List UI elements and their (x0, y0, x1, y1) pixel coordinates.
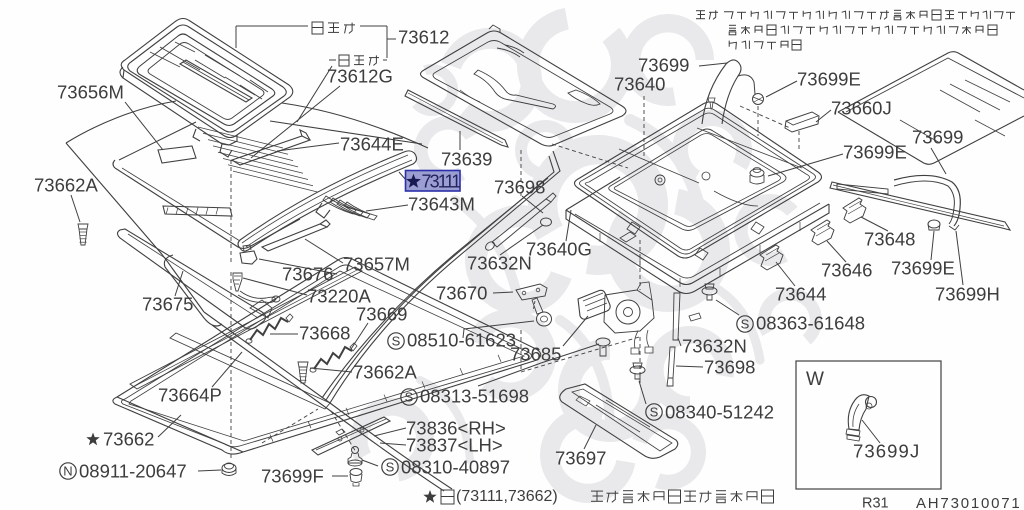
svg-text:73632N: 73632N (467, 253, 532, 274)
svg-text:S: S (405, 390, 414, 405)
svg-text:73675: 73675 (142, 294, 193, 315)
svg-text:08911-20647: 08911-20647 (79, 461, 187, 482)
svg-text:73612G: 73612G (327, 66, 393, 87)
svg-text:S: S (650, 405, 659, 420)
svg-text:AH73010071: AH73010071 (916, 495, 1022, 510)
svg-text:73699J: 73699J (853, 441, 920, 462)
svg-text:73699E: 73699E (797, 69, 861, 90)
svg-text:73640: 73640 (614, 74, 665, 95)
svg-text:73664P: 73664P (158, 385, 222, 406)
svg-text:73662A: 73662A (353, 362, 417, 383)
svg-text:S: S (386, 460, 395, 475)
svg-text:73668: 73668 (299, 323, 350, 344)
svg-text:73640G: 73640G (526, 239, 592, 260)
svg-text:73644: 73644 (775, 284, 826, 305)
svg-text:73699E: 73699E (891, 258, 955, 279)
svg-text:(73111,73662): (73111,73662) (456, 488, 558, 505)
svg-text:73632N: 73632N (682, 336, 747, 357)
svg-text:73699: 73699 (638, 55, 689, 76)
svg-text:08340-51242: 08340-51242 (665, 402, 774, 423)
svg-text:73685: 73685 (510, 344, 561, 365)
svg-text:73648: 73648 (864, 229, 915, 250)
svg-text:73111: 73111 (422, 172, 462, 192)
svg-text:73646: 73646 (821, 260, 872, 281)
svg-text:73612: 73612 (398, 27, 449, 48)
svg-text:73662A: 73662A (34, 175, 98, 196)
svg-text:73698: 73698 (704, 357, 755, 378)
svg-text:73676: 73676 (282, 264, 333, 285)
svg-text:73662: 73662 (103, 429, 154, 450)
svg-text:73644E: 73644E (340, 134, 404, 155)
svg-text:08313-51698: 08313-51698 (420, 386, 529, 407)
svg-text:73639: 73639 (441, 149, 492, 170)
svg-text:73660J: 73660J (831, 98, 892, 119)
svg-text:73698: 73698 (494, 177, 545, 198)
svg-text:S: S (741, 317, 750, 332)
svg-text:08363-61648: 08363-61648 (756, 313, 865, 334)
svg-text:73699E: 73699E (843, 142, 907, 163)
svg-text:73657M: 73657M (343, 254, 410, 275)
svg-text:73670: 73670 (436, 283, 487, 304)
svg-text:R31: R31 (862, 496, 889, 510)
svg-text:73656M: 73656M (57, 82, 124, 103)
svg-text:73699F: 73699F (261, 466, 324, 487)
svg-text:08310-40897: 08310-40897 (401, 457, 510, 478)
svg-text:73699: 73699 (912, 127, 963, 148)
svg-text:N: N (63, 464, 72, 479)
svg-text:73643M: 73643M (408, 194, 475, 215)
svg-text:S: S (392, 334, 401, 349)
svg-text:73699H: 73699H (935, 284, 1000, 305)
svg-text:73837<LH>: 73837<LH> (406, 435, 503, 456)
svg-text:W: W (806, 369, 824, 390)
svg-text:73697: 73697 (555, 448, 606, 469)
svg-text:73669: 73669 (356, 304, 407, 325)
svg-text:08510-61623: 08510-61623 (407, 330, 516, 351)
